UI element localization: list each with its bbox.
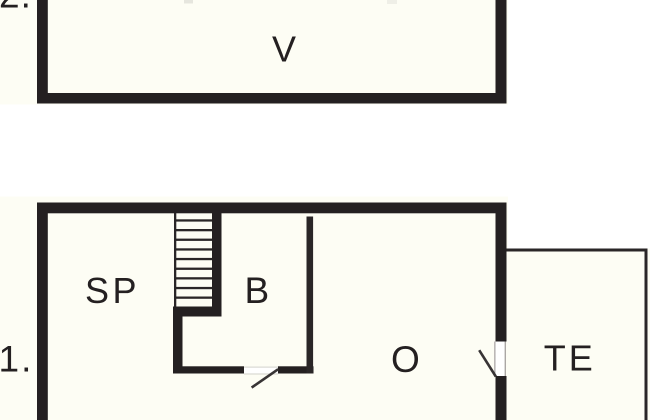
svg-text:2.: 2. [0,0,32,16]
svg-text:TE: TE [544,338,596,379]
svg-text:SP: SP [85,270,140,311]
svg-text:B: B [245,270,270,311]
svg-text:V: V [272,28,296,69]
svg-text:1.: 1. [0,339,33,380]
svg-text:O: O [391,339,420,380]
